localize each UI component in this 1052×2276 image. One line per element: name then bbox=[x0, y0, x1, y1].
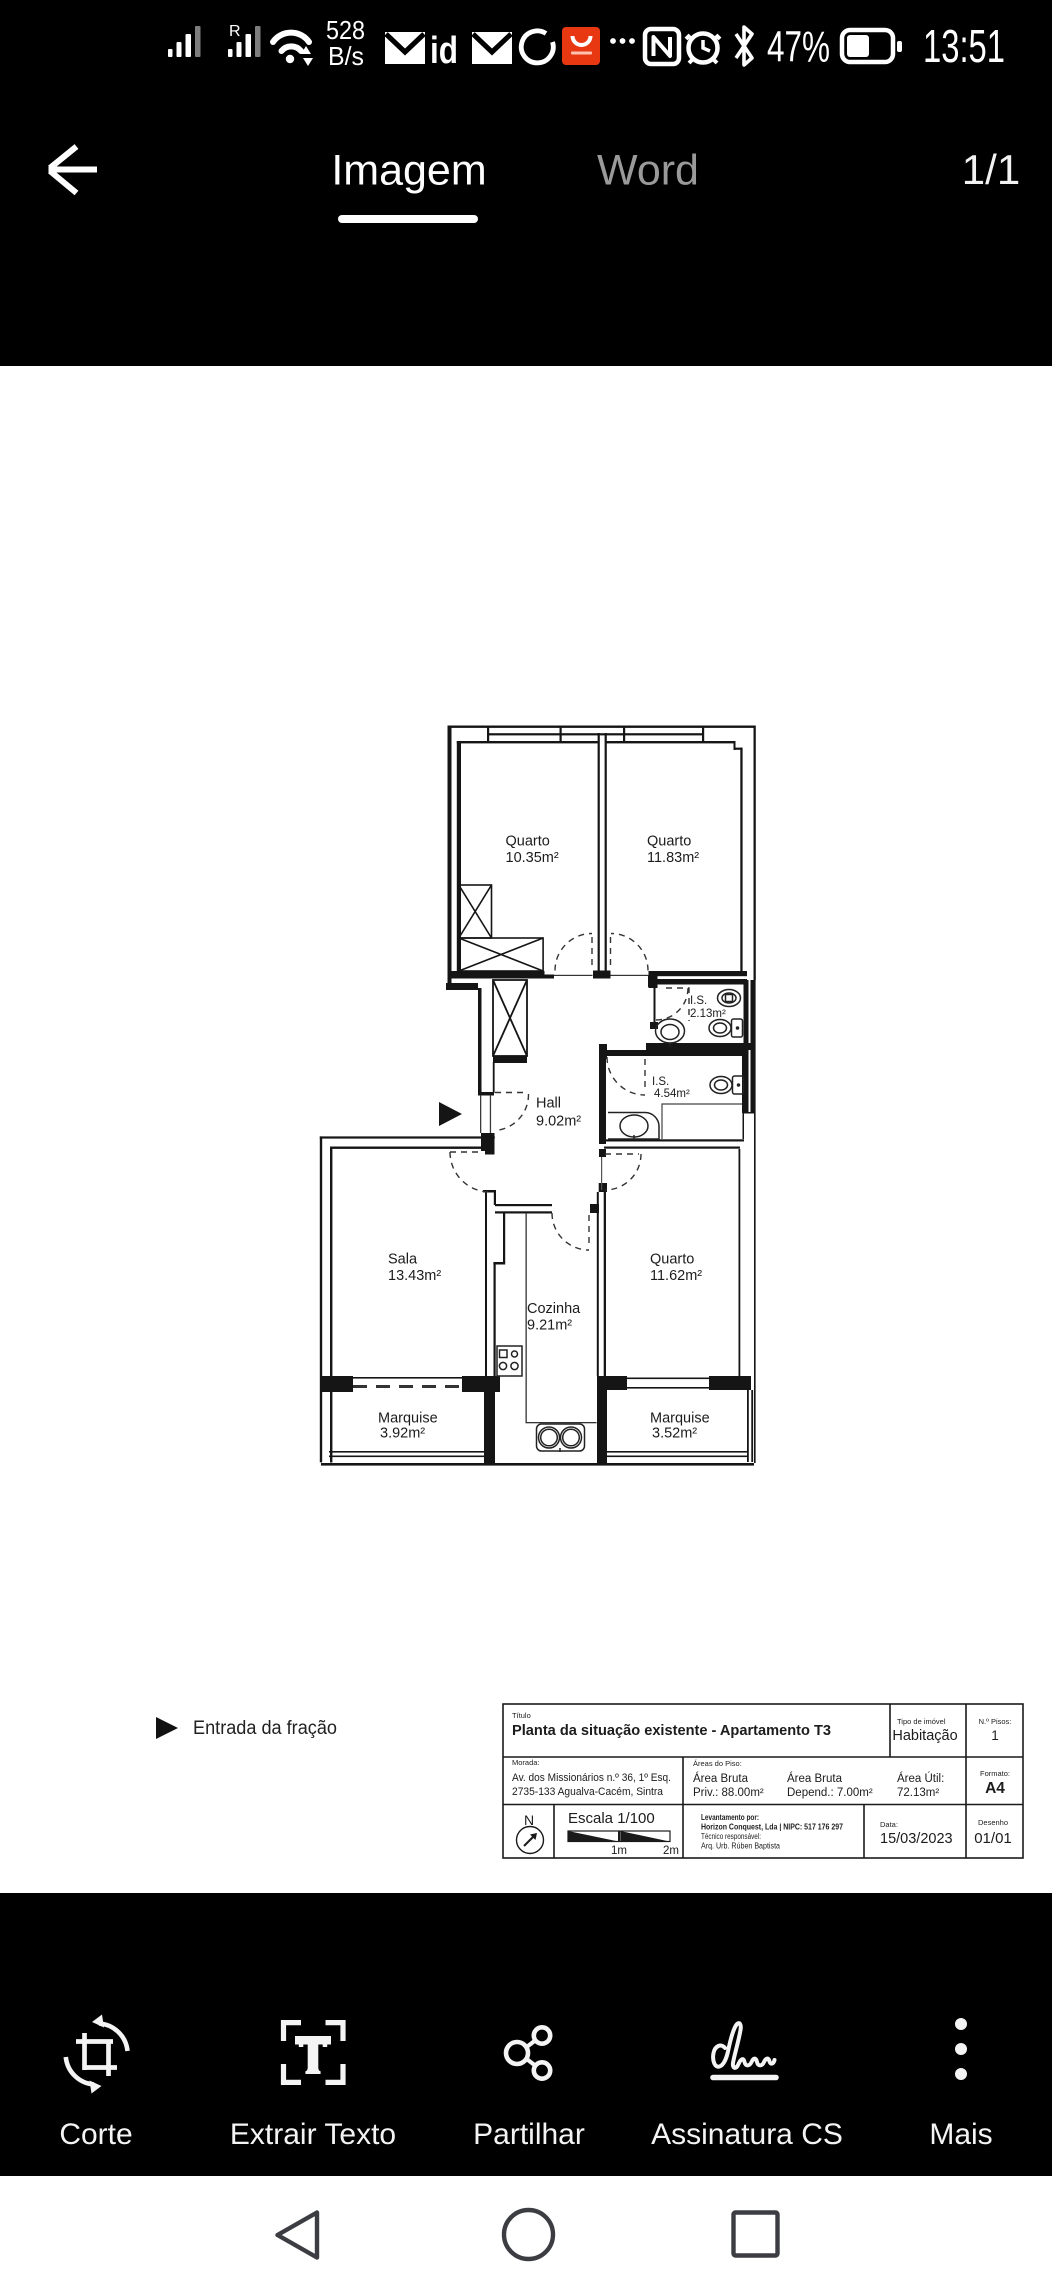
svg-text:9.21m²: 9.21m² bbox=[527, 1318, 572, 1334]
svg-text:Entrada da fração: Entrada da fração bbox=[193, 1718, 337, 1739]
svg-text:3.52m²: 3.52m² bbox=[652, 1426, 697, 1442]
svg-text:Depend.: 7.00m²: Depend.: 7.00m² bbox=[787, 1787, 873, 1799]
svg-text:11.83m²: 11.83m² bbox=[647, 850, 699, 866]
svg-text:Quarto: Quarto bbox=[506, 834, 550, 850]
svg-text:Data:: Data: bbox=[880, 1820, 898, 1829]
svg-text:Quarto: Quarto bbox=[650, 1252, 694, 1268]
svg-text:Imagem: Imagem bbox=[331, 147, 486, 195]
svg-text:Área Útil:: Área Útil: bbox=[897, 1772, 944, 1785]
svg-text:N.º Pisos:: N.º Pisos: bbox=[979, 1717, 1012, 1726]
svg-text:Priv.: 88.00m²: Priv.: 88.00m² bbox=[693, 1787, 764, 1799]
svg-text:2735-133 Agualva-Cacém, Sintra: 2735-133 Agualva-Cacém, Sintra bbox=[512, 1786, 664, 1798]
svg-text:Escala 1/100: Escala 1/100 bbox=[568, 1810, 655, 1827]
svg-text:A4: A4 bbox=[985, 1780, 1005, 1797]
svg-text:Áreas do Piso:: Áreas do Piso: bbox=[693, 1759, 742, 1768]
svg-text:Marquise: Marquise bbox=[378, 1411, 438, 1427]
svg-text:Desenho: Desenho bbox=[978, 1818, 1008, 1827]
svg-text:3.92m²: 3.92m² bbox=[380, 1426, 425, 1442]
svg-text:B/s: B/s bbox=[328, 41, 364, 71]
svg-text:Sala: Sala bbox=[388, 1252, 418, 1268]
svg-text:Hall: Hall bbox=[536, 1096, 561, 1112]
svg-text:2m: 2m bbox=[663, 1845, 679, 1857]
svg-text:Área Bruta: Área Bruta bbox=[693, 1772, 749, 1785]
svg-text:Tipo de imóvel: Tipo de imóvel bbox=[897, 1717, 946, 1726]
svg-text:Área Bruta: Área Bruta bbox=[787, 1772, 843, 1785]
svg-text:15/03/2023: 15/03/2023 bbox=[880, 1831, 953, 1847]
svg-text:N: N bbox=[524, 1812, 534, 1828]
svg-text:Levantamento por:: Levantamento por: bbox=[701, 1813, 759, 1822]
svg-text:Av. dos Missionários n.º 36, 1: Av. dos Missionários n.º 36, 1º Esq. bbox=[512, 1772, 671, 1784]
svg-text:R: R bbox=[229, 23, 241, 40]
svg-text:Planta da situação existente -: Planta da situação existente - Apartamen… bbox=[512, 1723, 831, 1739]
svg-text:1/1: 1/1 bbox=[962, 146, 1020, 193]
svg-text:Arq. Urb. Rúben Baptista: Arq. Urb. Rúben Baptista bbox=[701, 1842, 781, 1851]
svg-text:id: id bbox=[430, 30, 458, 72]
svg-text:10.35m²: 10.35m² bbox=[506, 850, 559, 866]
svg-text:47%: 47% bbox=[767, 23, 830, 72]
svg-text:72.13m²: 72.13m² bbox=[897, 1787, 939, 1799]
svg-text:1: 1 bbox=[991, 1728, 999, 1743]
svg-text:I.S.: I.S. bbox=[690, 995, 707, 1007]
svg-text:Marquise: Marquise bbox=[650, 1411, 710, 1427]
svg-text:13:51: 13:51 bbox=[923, 20, 1005, 72]
svg-text:11.62m²: 11.62m² bbox=[650, 1268, 702, 1284]
svg-text:Formato:: Formato: bbox=[980, 1769, 1010, 1778]
svg-text:Word: Word bbox=[597, 147, 699, 195]
svg-text:13.43m²: 13.43m² bbox=[388, 1268, 441, 1284]
svg-text:Habitação: Habitação bbox=[892, 1728, 957, 1744]
svg-text:Técnico responsável:: Técnico responsável: bbox=[701, 1832, 761, 1841]
svg-text:2.13m²: 2.13m² bbox=[690, 1008, 726, 1020]
svg-text:Horizon Conquest, Lda | NIPC:: Horizon Conquest, Lda | NIPC: 517 176 29… bbox=[701, 1823, 843, 1832]
svg-text:4.54m²: 4.54m² bbox=[654, 1088, 690, 1100]
svg-text:9.02m²: 9.02m² bbox=[536, 1114, 581, 1130]
svg-text:Quarto: Quarto bbox=[647, 834, 691, 850]
svg-text:1m: 1m bbox=[611, 1845, 627, 1857]
svg-text:I.S.: I.S. bbox=[652, 1076, 669, 1088]
svg-text:01/01: 01/01 bbox=[974, 1830, 1012, 1847]
svg-text:Cozinha: Cozinha bbox=[527, 1301, 581, 1317]
svg-text:Título: Título bbox=[512, 1711, 531, 1720]
svg-text:Morada:: Morada: bbox=[512, 1758, 540, 1767]
